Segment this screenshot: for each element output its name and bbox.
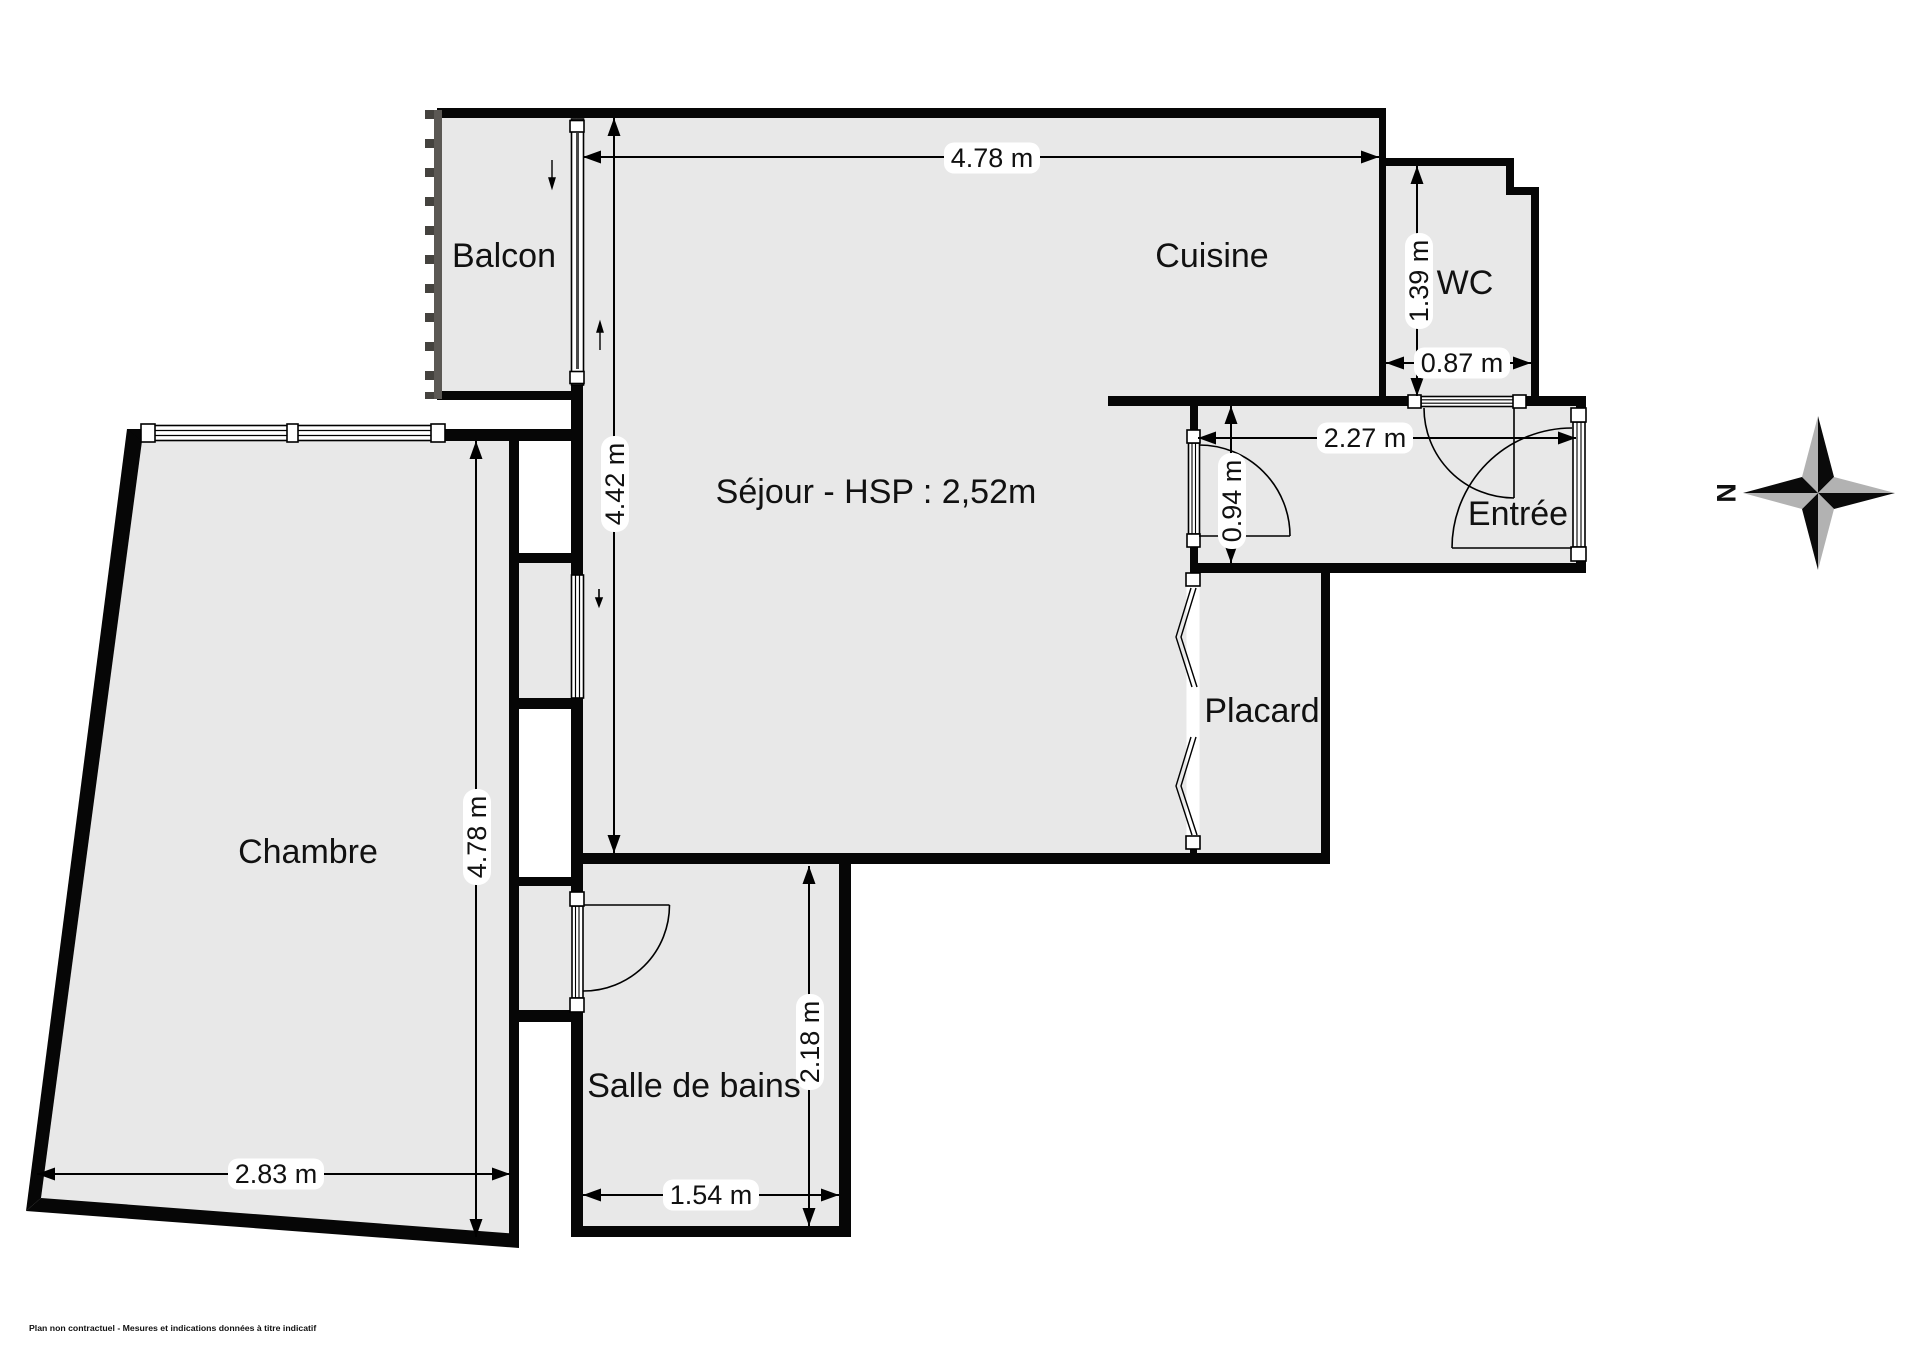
svg-text:2.27 m: 2.27 m bbox=[1324, 423, 1407, 453]
svg-text:Balcon: Balcon bbox=[452, 237, 556, 275]
svg-text:0.94 m: 0.94 m bbox=[1217, 460, 1247, 543]
svg-text:1.39 m: 1.39 m bbox=[1404, 240, 1434, 323]
svg-text:Placard: Placard bbox=[1204, 692, 1319, 730]
svg-text:4.78 m: 4.78 m bbox=[462, 796, 492, 879]
svg-text:4.42 m: 4.42 m bbox=[600, 443, 630, 526]
svg-text:0.87 m: 0.87 m bbox=[1421, 348, 1504, 378]
svg-text:4.78 m: 4.78 m bbox=[951, 143, 1034, 173]
svg-text:Chambre: Chambre bbox=[238, 833, 378, 871]
svg-text:N: N bbox=[1711, 483, 1741, 503]
svg-text:1.54 m: 1.54 m bbox=[670, 1180, 753, 1210]
svg-text:Entrée: Entrée bbox=[1468, 495, 1568, 533]
svg-text:2.83 m: 2.83 m bbox=[235, 1159, 318, 1189]
svg-text:WC: WC bbox=[1437, 264, 1494, 302]
svg-text:Séjour - HSP : 2,52m: Séjour - HSP : 2,52m bbox=[716, 473, 1037, 511]
svg-text:Plan non contractuel - Mesures: Plan non contractuel - Mesures et indica… bbox=[29, 1323, 316, 1333]
svg-text:Salle de bains: Salle de bains bbox=[587, 1067, 801, 1105]
svg-text:Cuisine: Cuisine bbox=[1155, 237, 1268, 275]
